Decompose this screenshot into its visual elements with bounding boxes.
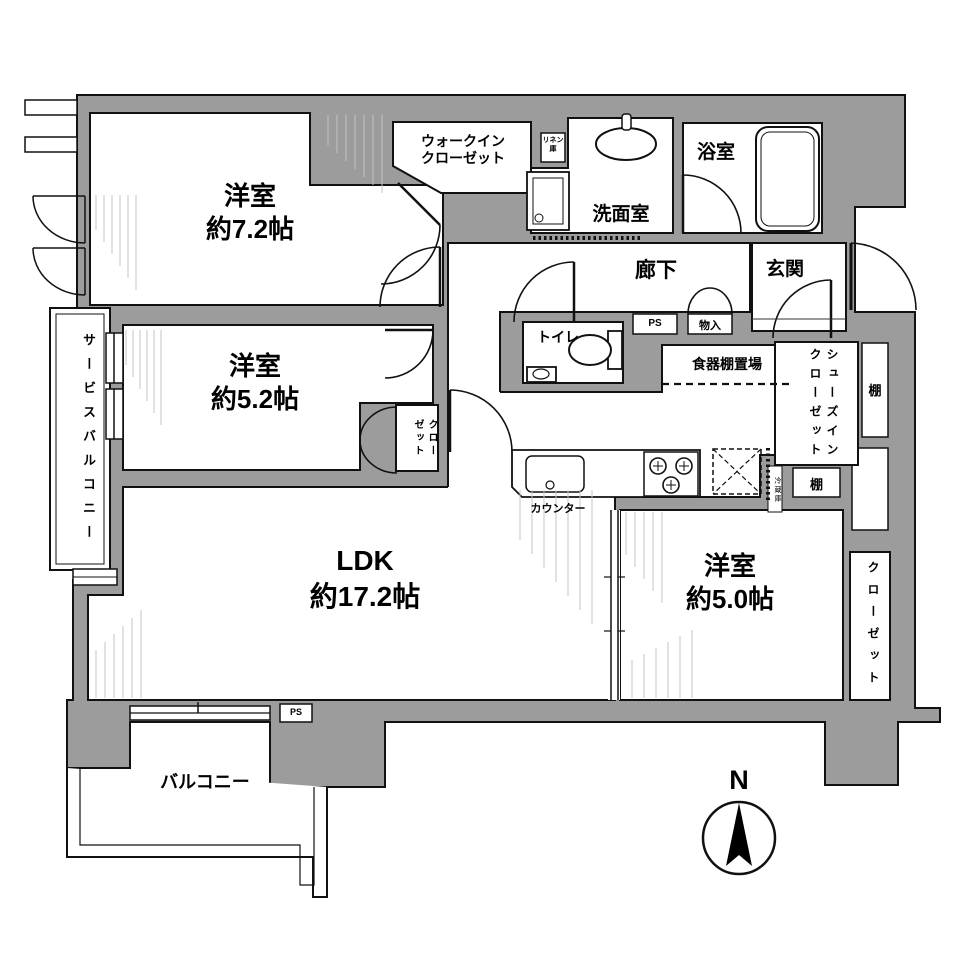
washing-machine-icon (527, 172, 569, 230)
entrance-label: 玄関 (750, 254, 820, 281)
closet-bedroom2-label: クローゼット (398, 418, 438, 458)
service-balcony-label: サービスバルコニー (72, 318, 98, 563)
bathroom-label: 浴室 (680, 137, 752, 164)
bedroom3-label: 洋室約5.0帖 (610, 550, 850, 616)
hallway-label: 廊下 (597, 254, 715, 284)
refrigerator-label: 冷蔵庫 (769, 473, 782, 507)
linen-label: リネン庫 (541, 136, 565, 154)
floor-plan: 洋室約7.2帖 洋室約5.2帖 洋室約5.0帖 LDK約17.2帖 ウォークイン… (0, 0, 960, 960)
sink-icon (526, 456, 584, 492)
bedroom1-label: 洋室約7.2帖 (130, 180, 370, 246)
north-label: N (722, 765, 756, 796)
ldk-label: LDK約17.2帖 (245, 543, 485, 615)
toilet-label: トイレ (521, 327, 595, 347)
closet-bedroom3-label: クローゼット (858, 558, 882, 696)
ps-hall-label: PS (633, 318, 677, 329)
kitchen-counter (512, 450, 700, 497)
washroom-label: 洗面室 (566, 199, 676, 226)
north-compass-icon (703, 802, 775, 874)
shoe-closet-label: シューズインクローゼット (788, 346, 840, 464)
ps-balcony-label: PS (280, 707, 312, 717)
dish-shelf-label: 食器棚置場 (660, 354, 794, 374)
shelf-lower-label: 棚 (793, 474, 840, 493)
bathtub-icon (756, 127, 819, 231)
walkin-closet-label: ウォークインクローゼット (396, 133, 530, 167)
storage-label: 物入 (688, 317, 732, 333)
shelf-upper-label: 棚 (862, 380, 888, 399)
counter-label: カウンター (522, 500, 594, 516)
balcony-label: バルコニー (140, 768, 270, 794)
bedroom2-label: 洋室約5.2帖 (135, 350, 375, 416)
